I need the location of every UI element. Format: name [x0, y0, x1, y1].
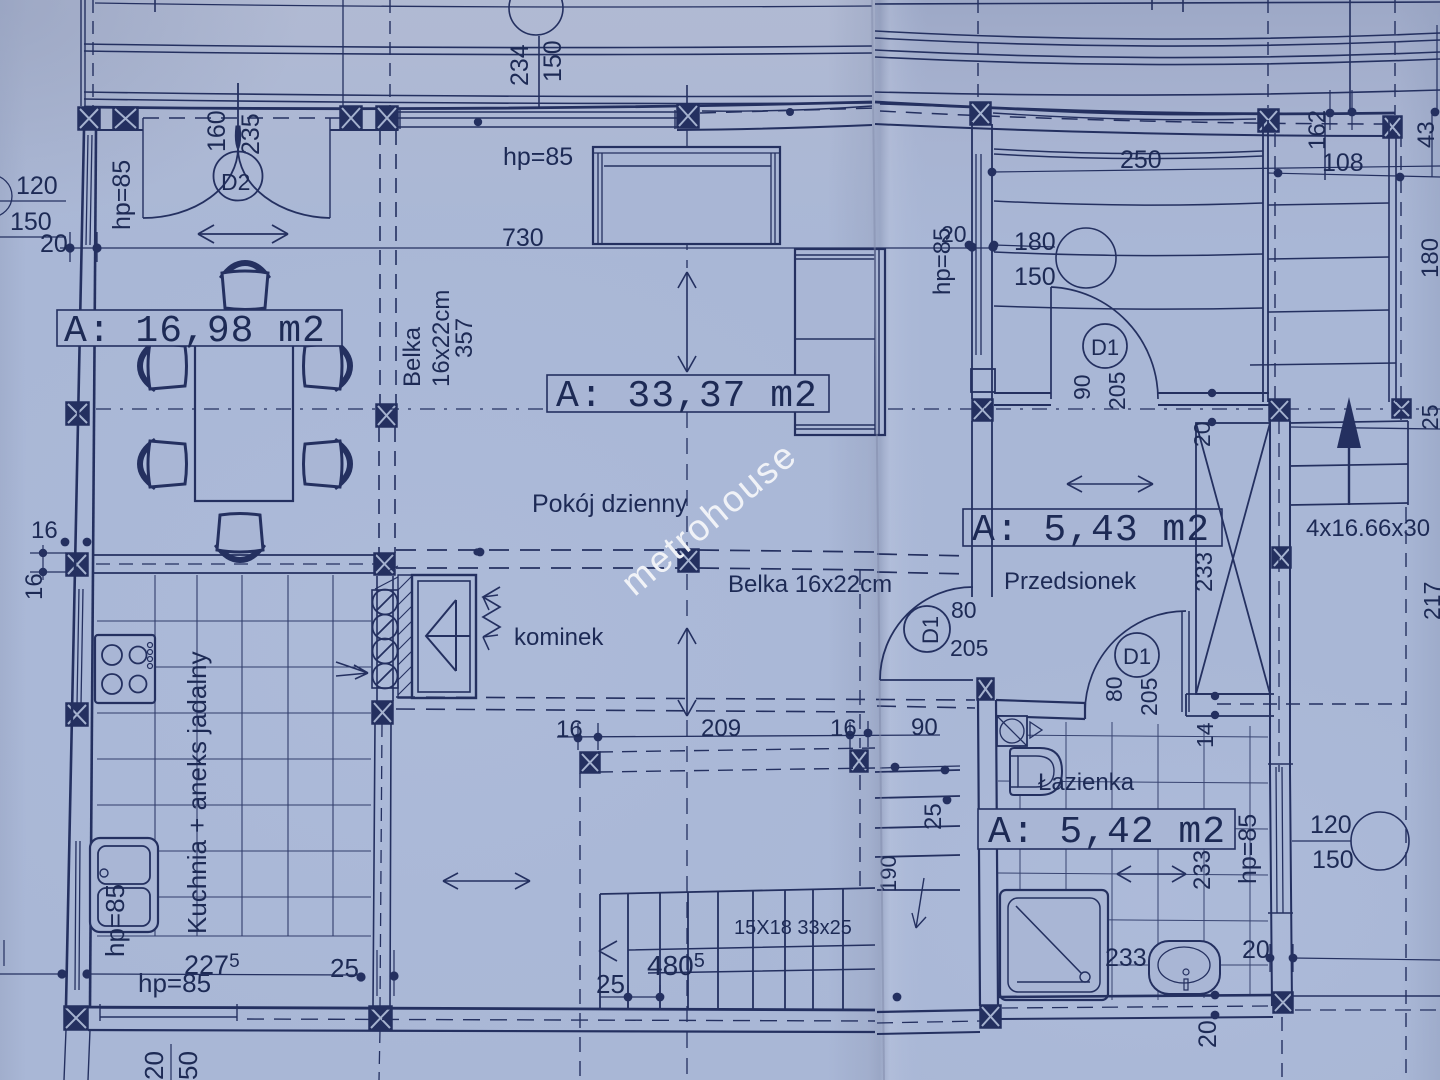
svg-text:D1: D1 [918, 616, 943, 644]
svg-text:20: 20 [1242, 936, 1270, 964]
svg-text:hp=85: hp=85 [108, 160, 136, 230]
svg-text:120: 120 [1310, 811, 1352, 839]
svg-text:150: 150 [539, 40, 567, 82]
svg-text:80: 80 [951, 597, 977, 623]
svg-text:20: 20 [1189, 421, 1215, 447]
svg-text:hp=85: hp=85 [1234, 814, 1262, 884]
svg-text:233: 233 [1189, 850, 1216, 890]
svg-text:20: 20 [139, 1051, 169, 1080]
svg-text:233: 233 [1191, 552, 1218, 592]
svg-text:A: 5,43 m2: A: 5,43 m2 [972, 509, 1210, 552]
svg-text:730: 730 [502, 224, 544, 252]
svg-text:16: 16 [556, 716, 583, 743]
svg-text:16: 16 [830, 715, 857, 742]
svg-text:234: 234 [506, 44, 534, 86]
svg-text:190: 190 [876, 855, 901, 892]
svg-text:25: 25 [596, 969, 625, 999]
svg-text:Belka: Belka [399, 326, 426, 387]
svg-text:20: 20 [40, 230, 68, 258]
svg-text:250: 250 [1120, 146, 1162, 174]
svg-text:25: 25 [330, 953, 359, 983]
svg-text:16: 16 [21, 573, 48, 600]
svg-text:235: 235 [237, 113, 265, 155]
svg-text:150: 150 [1312, 846, 1354, 874]
svg-text:16: 16 [31, 517, 58, 544]
svg-text:Belka 16x22cm: Belka 16x22cm [728, 571, 892, 598]
svg-text:hp=85: hp=85 [100, 884, 130, 957]
svg-text:205: 205 [950, 635, 988, 661]
svg-text:4x16.66x30: 4x16.66x30 [1306, 515, 1430, 542]
svg-text:A: 16,98 m2: A: 16,98 m2 [64, 310, 326, 353]
svg-text:A: 5,42 m2: A: 5,42 m2 [988, 811, 1226, 854]
svg-text:25: 25 [920, 803, 947, 830]
svg-text:hp=85: hp=85 [503, 143, 573, 171]
svg-text:120: 120 [16, 172, 58, 200]
svg-text:217: 217 [1419, 582, 1440, 620]
svg-text:D1: D1 [1123, 644, 1151, 669]
svg-text:205: 205 [1136, 678, 1162, 716]
svg-text:D2: D2 [221, 169, 250, 195]
svg-text:209: 209 [701, 715, 741, 742]
svg-text:Przedsionek: Przedsionek [1004, 568, 1137, 595]
svg-text:D1: D1 [1091, 335, 1119, 360]
svg-text:80: 80 [1101, 676, 1127, 702]
svg-text:150: 150 [1014, 263, 1056, 291]
svg-text:50: 50 [173, 1051, 203, 1080]
svg-text:Kuchnia + aneks jadalny: Kuchnia + aneks jadalny [182, 651, 212, 934]
svg-text:205: 205 [1104, 372, 1130, 410]
svg-text:Łazienka: Łazienka [1038, 769, 1135, 796]
svg-text:357: 357 [451, 318, 478, 358]
svg-text:A: 33,37 m2: A: 33,37 m2 [556, 375, 818, 418]
svg-text:20: 20 [1194, 1020, 1222, 1048]
svg-text:180: 180 [1417, 238, 1440, 278]
svg-text:15X18 33x25: 15X18 33x25 [734, 917, 852, 939]
svg-text:90: 90 [1069, 374, 1095, 400]
svg-text:160: 160 [203, 110, 231, 152]
svg-text:14: 14 [1192, 722, 1218, 748]
svg-text:108: 108 [1322, 149, 1364, 177]
svg-text:Pokój dzienny: Pokój dzienny [532, 490, 688, 518]
svg-text:90: 90 [911, 714, 938, 741]
svg-text:kominek: kominek [514, 624, 604, 651]
svg-text:43: 43 [1413, 121, 1440, 148]
svg-text:hp=85: hp=85 [929, 228, 956, 295]
svg-text:233: 233 [1105, 944, 1147, 972]
svg-text:25: 25 [1417, 404, 1440, 430]
svg-text:162: 162 [1304, 110, 1331, 150]
svg-text:180: 180 [1014, 228, 1056, 256]
